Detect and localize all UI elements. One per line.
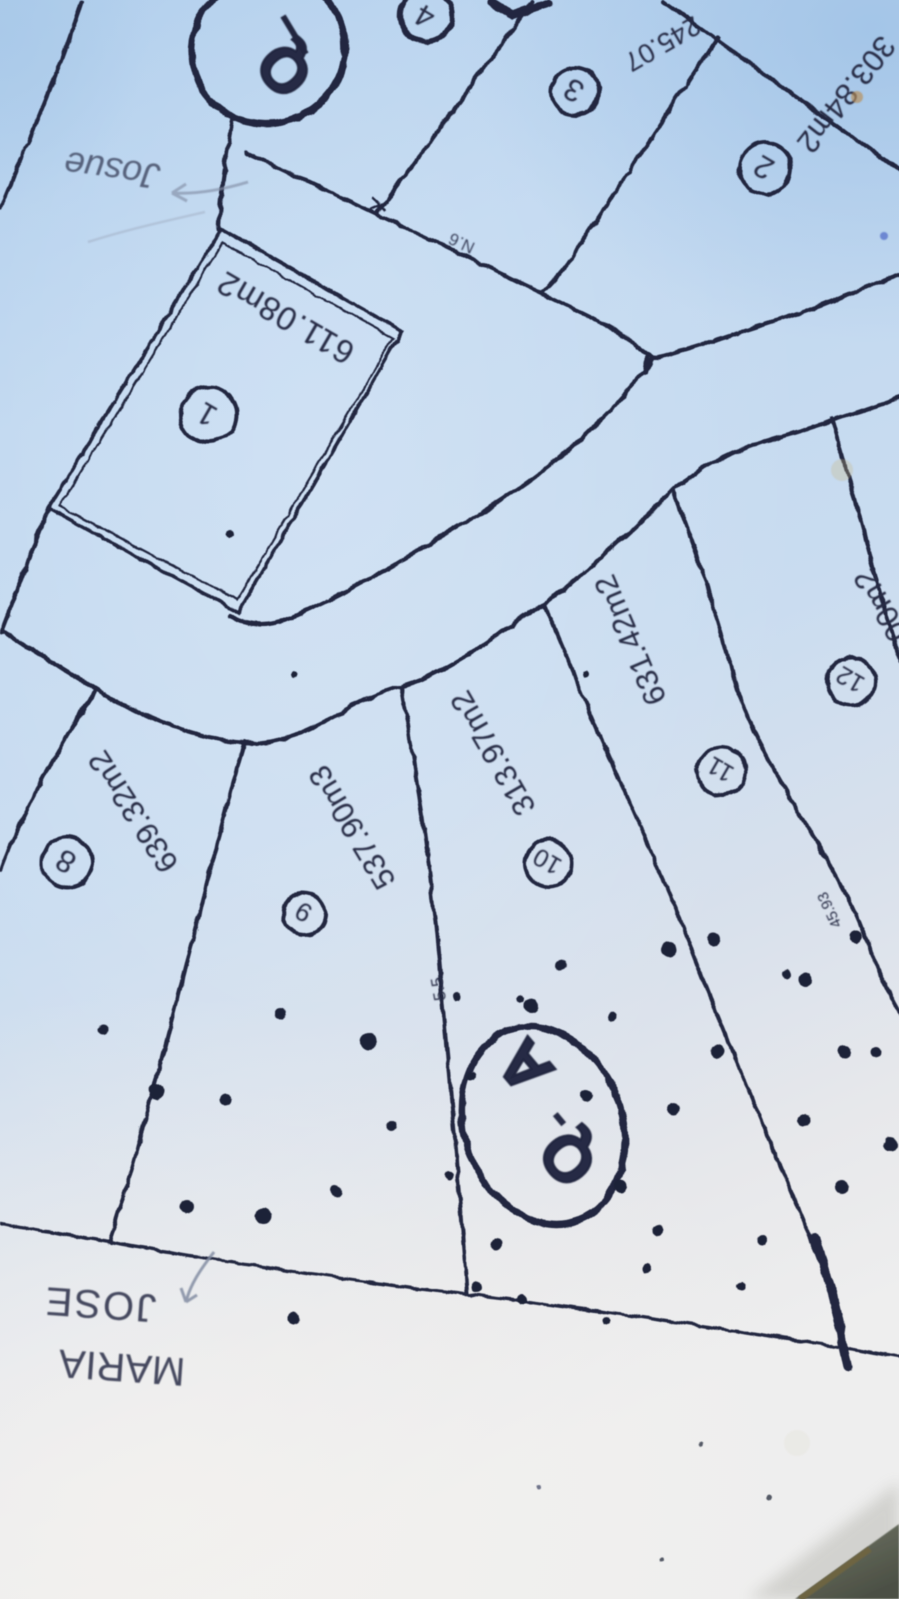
svg-text:JOSE: JOSE xyxy=(42,1278,157,1330)
svg-text:5.5: 5.5 xyxy=(427,976,450,1003)
svg-text:MARIA: MARIA xyxy=(57,1341,187,1394)
